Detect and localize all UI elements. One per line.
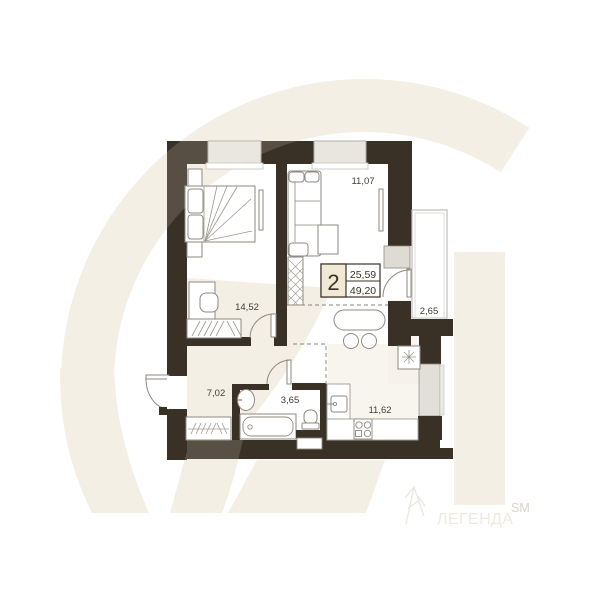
svg-text:2: 2 [327,270,339,295]
svg-text:49,20: 49,20 [350,285,376,297]
svg-text:3,65: 3,65 [281,395,300,406]
svg-text:SM: SM [511,501,530,515]
svg-text:7,02: 7,02 [207,388,226,399]
svg-text:11,07: 11,07 [351,176,374,187]
svg-text:11,62: 11,62 [368,405,391,416]
svg-text:2,65: 2,65 [420,306,439,317]
svg-text:25,59: 25,59 [350,269,376,281]
svg-text:14,52: 14,52 [235,302,259,313]
svg-text:ЛЕГЕНДА: ЛЕГЕНДА [437,511,513,528]
